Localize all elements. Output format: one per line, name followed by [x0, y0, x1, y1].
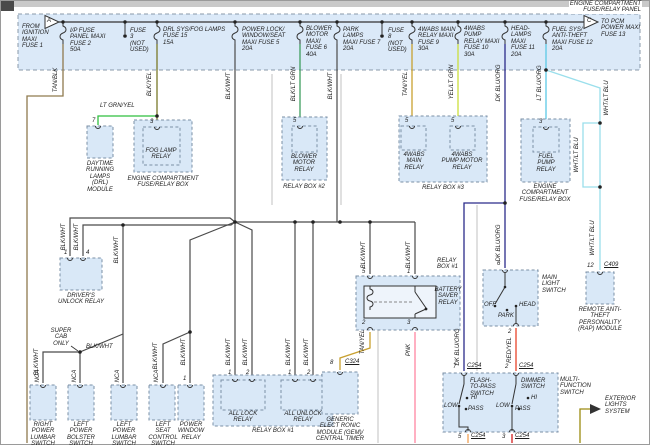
wire-label: BLK/WHT: [226, 73, 232, 100]
power-window-relay-label: POWER WINDOW RELAY: [178, 422, 204, 441]
main-light-switch-label: MAIN LIGHT SWITCH: [542, 275, 566, 294]
wire-label: LT BLU/ORG: [537, 65, 543, 100]
switch-position-label: HI: [471, 395, 477, 401]
left-power-lumbar-label: LEFT POWER LUMBAR SWITCH: [111, 422, 136, 445]
pin-label: NCA: [35, 370, 41, 383]
all-lock-relay-box: [221, 380, 265, 410]
dimmer-switch-label: DIMMER SWITCH: [521, 378, 545, 391]
pin-label: 5: [458, 434, 461, 440]
wire-label: WHT/LT BLU: [574, 137, 580, 172]
all-unlock-relay-box: [281, 380, 325, 410]
left-power-lumbar-box: [111, 385, 137, 420]
wire-label: RED/YEL: [507, 337, 513, 363]
fuse-12-label: FUEL SYS/ ANTI-THEFT MAXI FUSE 12 20A: [552, 27, 593, 53]
pin-label: 6: [497, 261, 500, 267]
pin-label: 5: [405, 118, 408, 124]
pin-label: NCA: [115, 370, 121, 383]
left-seat-control-box: [149, 385, 175, 420]
fuse-3-label: FUSE 3 (NOT USED): [130, 28, 149, 54]
panel-title: ENGINE COMPARTMENT FUSE/RELAY PANEL: [569, 1, 642, 14]
fuse-5-label: POWER LOCK/ WINDOW/SEAT MAXI FUSE 5 20A: [242, 27, 285, 53]
pin-label: 5: [362, 269, 365, 275]
pin-label: 1: [407, 269, 410, 275]
left-power-bolster-box: [68, 385, 94, 420]
pin-label: 2: [246, 370, 249, 376]
fuel-pump-relay-box: [533, 127, 559, 152]
pin-label: 12: [587, 263, 594, 269]
wire-label: YEL/LT GRN: [449, 65, 455, 100]
wire-label: BLK/LT GRN: [291, 67, 297, 102]
wire-label: BLK/WHT: [361, 242, 367, 269]
to-pcm-label: TO PCM POWER MAXI FUSE 13: [601, 19, 640, 38]
wire-label: DK BLU/ORG: [496, 224, 502, 261]
pin-label: 1: [183, 376, 186, 382]
fuse-7-label: PARK LAMPS MAXI FUSE 7 20A: [343, 27, 380, 53]
relay-box-1-label: RELAY BOX #1: [437, 258, 458, 271]
drl-module-label: DAYTIME RUNNING LAMPS (DRL) MODULE: [86, 161, 114, 193]
fuse-9-label: 4WABS MAIN RELAY MAXI FUSE 9 30A: [418, 27, 456, 53]
pin-label: 3: [539, 119, 542, 125]
wire-label: WHT/LT BLU: [590, 220, 596, 255]
super-cab-pointer: [71, 346, 78, 351]
from-ignition-label: FROM IGNITION MAXI FUSE 1: [22, 24, 49, 50]
exterior-lights-arrow: [590, 404, 601, 414]
pin-label: 7: [92, 118, 95, 124]
wire-label: DK BLU/ORG: [496, 64, 502, 101]
pin-label: 2: [508, 329, 511, 335]
wire-tan-blk: [27, 44, 63, 443]
wire-label: BLK/WHT: [226, 339, 232, 366]
4wabs-pump-relay-box: [450, 126, 475, 150]
fuse-11-label: HEAD- LAMPS MAXI FUSE 11 20A: [511, 26, 535, 58]
relay-box-1-label: RELAY BOX #1: [252, 428, 294, 434]
pin-label: 3: [150, 119, 153, 125]
rap-module-label: REMOTE ANTI- THEFT PERSONALITY (RAP) MOD…: [578, 307, 622, 333]
fuse-15-label: DRL SYS/FOG LAMPS FUSE 15 15A: [163, 27, 225, 46]
left-power-bolster-label: LEFT POWER BOLSTER SWITCH: [67, 422, 95, 445]
pin-label: 1: [64, 250, 67, 256]
pin-label: 1: [228, 370, 231, 376]
arrow-c-label: C: [587, 18, 591, 24]
wire-label: BLK/WHT: [328, 73, 334, 100]
power-window-relay-box: [178, 385, 204, 420]
right-power-lumbar-label: RIGHT POWER LUMBAR SWITCH: [30, 422, 55, 445]
wire-label: BLK/WHT: [243, 339, 249, 366]
switch-position-label: PARK: [498, 313, 514, 319]
switch-position-label: LOW: [444, 403, 458, 409]
blower-relay-label: BLOWER MOTOR RELAY: [291, 154, 317, 173]
pin-label: 7: [453, 364, 456, 370]
relay-box-2-label: RELAY BOX #2: [283, 184, 325, 190]
wire-label: BLK/WHT: [114, 237, 120, 264]
all-lock-relay-label: ALL LOCK RELAY: [229, 411, 258, 424]
wire-label: WHT/LT BLU: [604, 80, 610, 115]
wire-label: BLK/WHT: [74, 224, 80, 251]
wire-label: TAN/YEL: [360, 330, 366, 355]
left-seat-control-label: LEFT SEAT CONTROL SWITCH: [148, 422, 177, 445]
wire-label: BLK/WHT: [153, 343, 159, 370]
multi-function-switch-label: MULTI- FUNCTION SWITCH: [560, 377, 591, 396]
pin-label: NCA: [154, 370, 160, 383]
gem-label: GENERIC ELECT RONIC MODULE (GEM)/ CENTRA…: [316, 417, 364, 443]
4wabs-pump-relay-label: 4WABS PUMP MOTOR RELAY: [441, 152, 482, 171]
pin-label: 8: [330, 360, 333, 366]
diagram-canvas: [0, 0, 650, 445]
wire-label: BLK/WHT: [61, 224, 67, 251]
pin-label: 3: [502, 434, 505, 440]
switch-position-label: PASS: [468, 406, 484, 412]
arrow-a-label: A: [47, 18, 51, 24]
switch-position-label: HI: [531, 395, 537, 401]
4wabs-main-relay-label: 4WABS MAIN RELAY: [404, 152, 425, 171]
pin-label: NCA: [72, 370, 78, 383]
top-bar: [0, 0, 650, 7]
wire-label: TAN/BLK: [53, 68, 59, 93]
wire-label: BLK/WHT: [286, 339, 292, 366]
drivers-unlock-relay-box: [60, 258, 102, 290]
drl-module-box: [87, 126, 113, 158]
gem-box: [322, 372, 358, 414]
fuse-8-label: FUSE 8 (NOT USED): [388, 28, 407, 54]
wire-label: DK BLU/ORG: [455, 328, 461, 365]
ecfrb-label: ENGINE COMPARTMENT FUSE/RELAY BOX: [127, 176, 198, 189]
rap-module-box: [586, 272, 614, 304]
connector-label: C254: [471, 433, 485, 439]
switch-position-label: HEAD: [519, 302, 536, 308]
fuse-2-label: I/P FUSE PANEL MAXI FUSE 2 50A: [70, 28, 105, 54]
fuel-pump-relay-label: FUEL PUMP RELAY: [536, 154, 555, 173]
connector-label: C409: [604, 262, 618, 268]
blower-relay-box: [292, 126, 317, 152]
fuse-6-label: BLOWER MOTOR MAXI FUSE 6 40A: [306, 26, 332, 58]
switch-position-label: OFF: [484, 302, 496, 308]
wire-dk-yel: [580, 409, 590, 443]
wire-label: BLK/YEL: [147, 72, 153, 96]
switch-position-label: LOW: [496, 403, 510, 409]
wire-label: PNK: [406, 344, 412, 356]
ecfrb-fuel-label: ENGINE COMPARTMENT FUSE/RELAY BOX: [519, 184, 570, 203]
wiring-diagram-page: ENGINE COMPARTMENT FUSE/RELAY PANEL FROM…: [0, 0, 650, 445]
pin-label: 2: [505, 364, 508, 370]
wire-wht-lt-blu-loop: [583, 123, 600, 187]
wire-label: LT GRN/YEL: [100, 103, 135, 109]
exterior-lights-label: EXTERIOR LIGHTS SYSTEM: [605, 396, 636, 415]
pin-label: 3: [407, 320, 410, 326]
window-tab: [0, 0, 14, 11]
super-cab-only-label: SUPER CAB ONLY: [51, 328, 72, 347]
battery-saver-relay-label: BATTERY SAVER RELAY: [434, 287, 461, 306]
pin-label: 1: [288, 370, 291, 376]
relay-box-3-label: RELAY BOX #3: [422, 185, 464, 191]
connector-label: C254: [519, 363, 533, 369]
wire-label: BLK/WHT: [304, 339, 310, 366]
wire-label: BLK/WHT: [86, 344, 113, 350]
switch-position-label: PASS: [515, 406, 531, 412]
battery-saver-contact: [425, 308, 428, 311]
connector-label: C254: [467, 363, 481, 369]
connector-label: C254: [515, 433, 529, 439]
4wabs-main-relay-box: [401, 126, 426, 150]
pin-label: 5: [451, 118, 454, 124]
fog-lamp-relay-label: FOG LAMP RELAY: [145, 148, 176, 161]
fuse-10-label: 4WABS PUMP RELAY MAXI FUSE 10 30A: [464, 26, 499, 58]
wire-label: BLK/WHT: [181, 339, 187, 366]
right-power-lumbar-box: [30, 385, 56, 420]
pin-label: 5: [293, 118, 296, 124]
wire-label: BLK/WHT: [406, 242, 412, 269]
connector-label: C324: [345, 359, 359, 365]
pin-label: 2: [307, 370, 310, 376]
drivers-unlock-relay-label: DRIVER'S UNLOCK RELAY: [58, 293, 104, 306]
wire-label: TAN/YEL: [403, 72, 409, 97]
pin-label: 4: [86, 250, 89, 256]
pin-label: 2: [362, 320, 365, 326]
